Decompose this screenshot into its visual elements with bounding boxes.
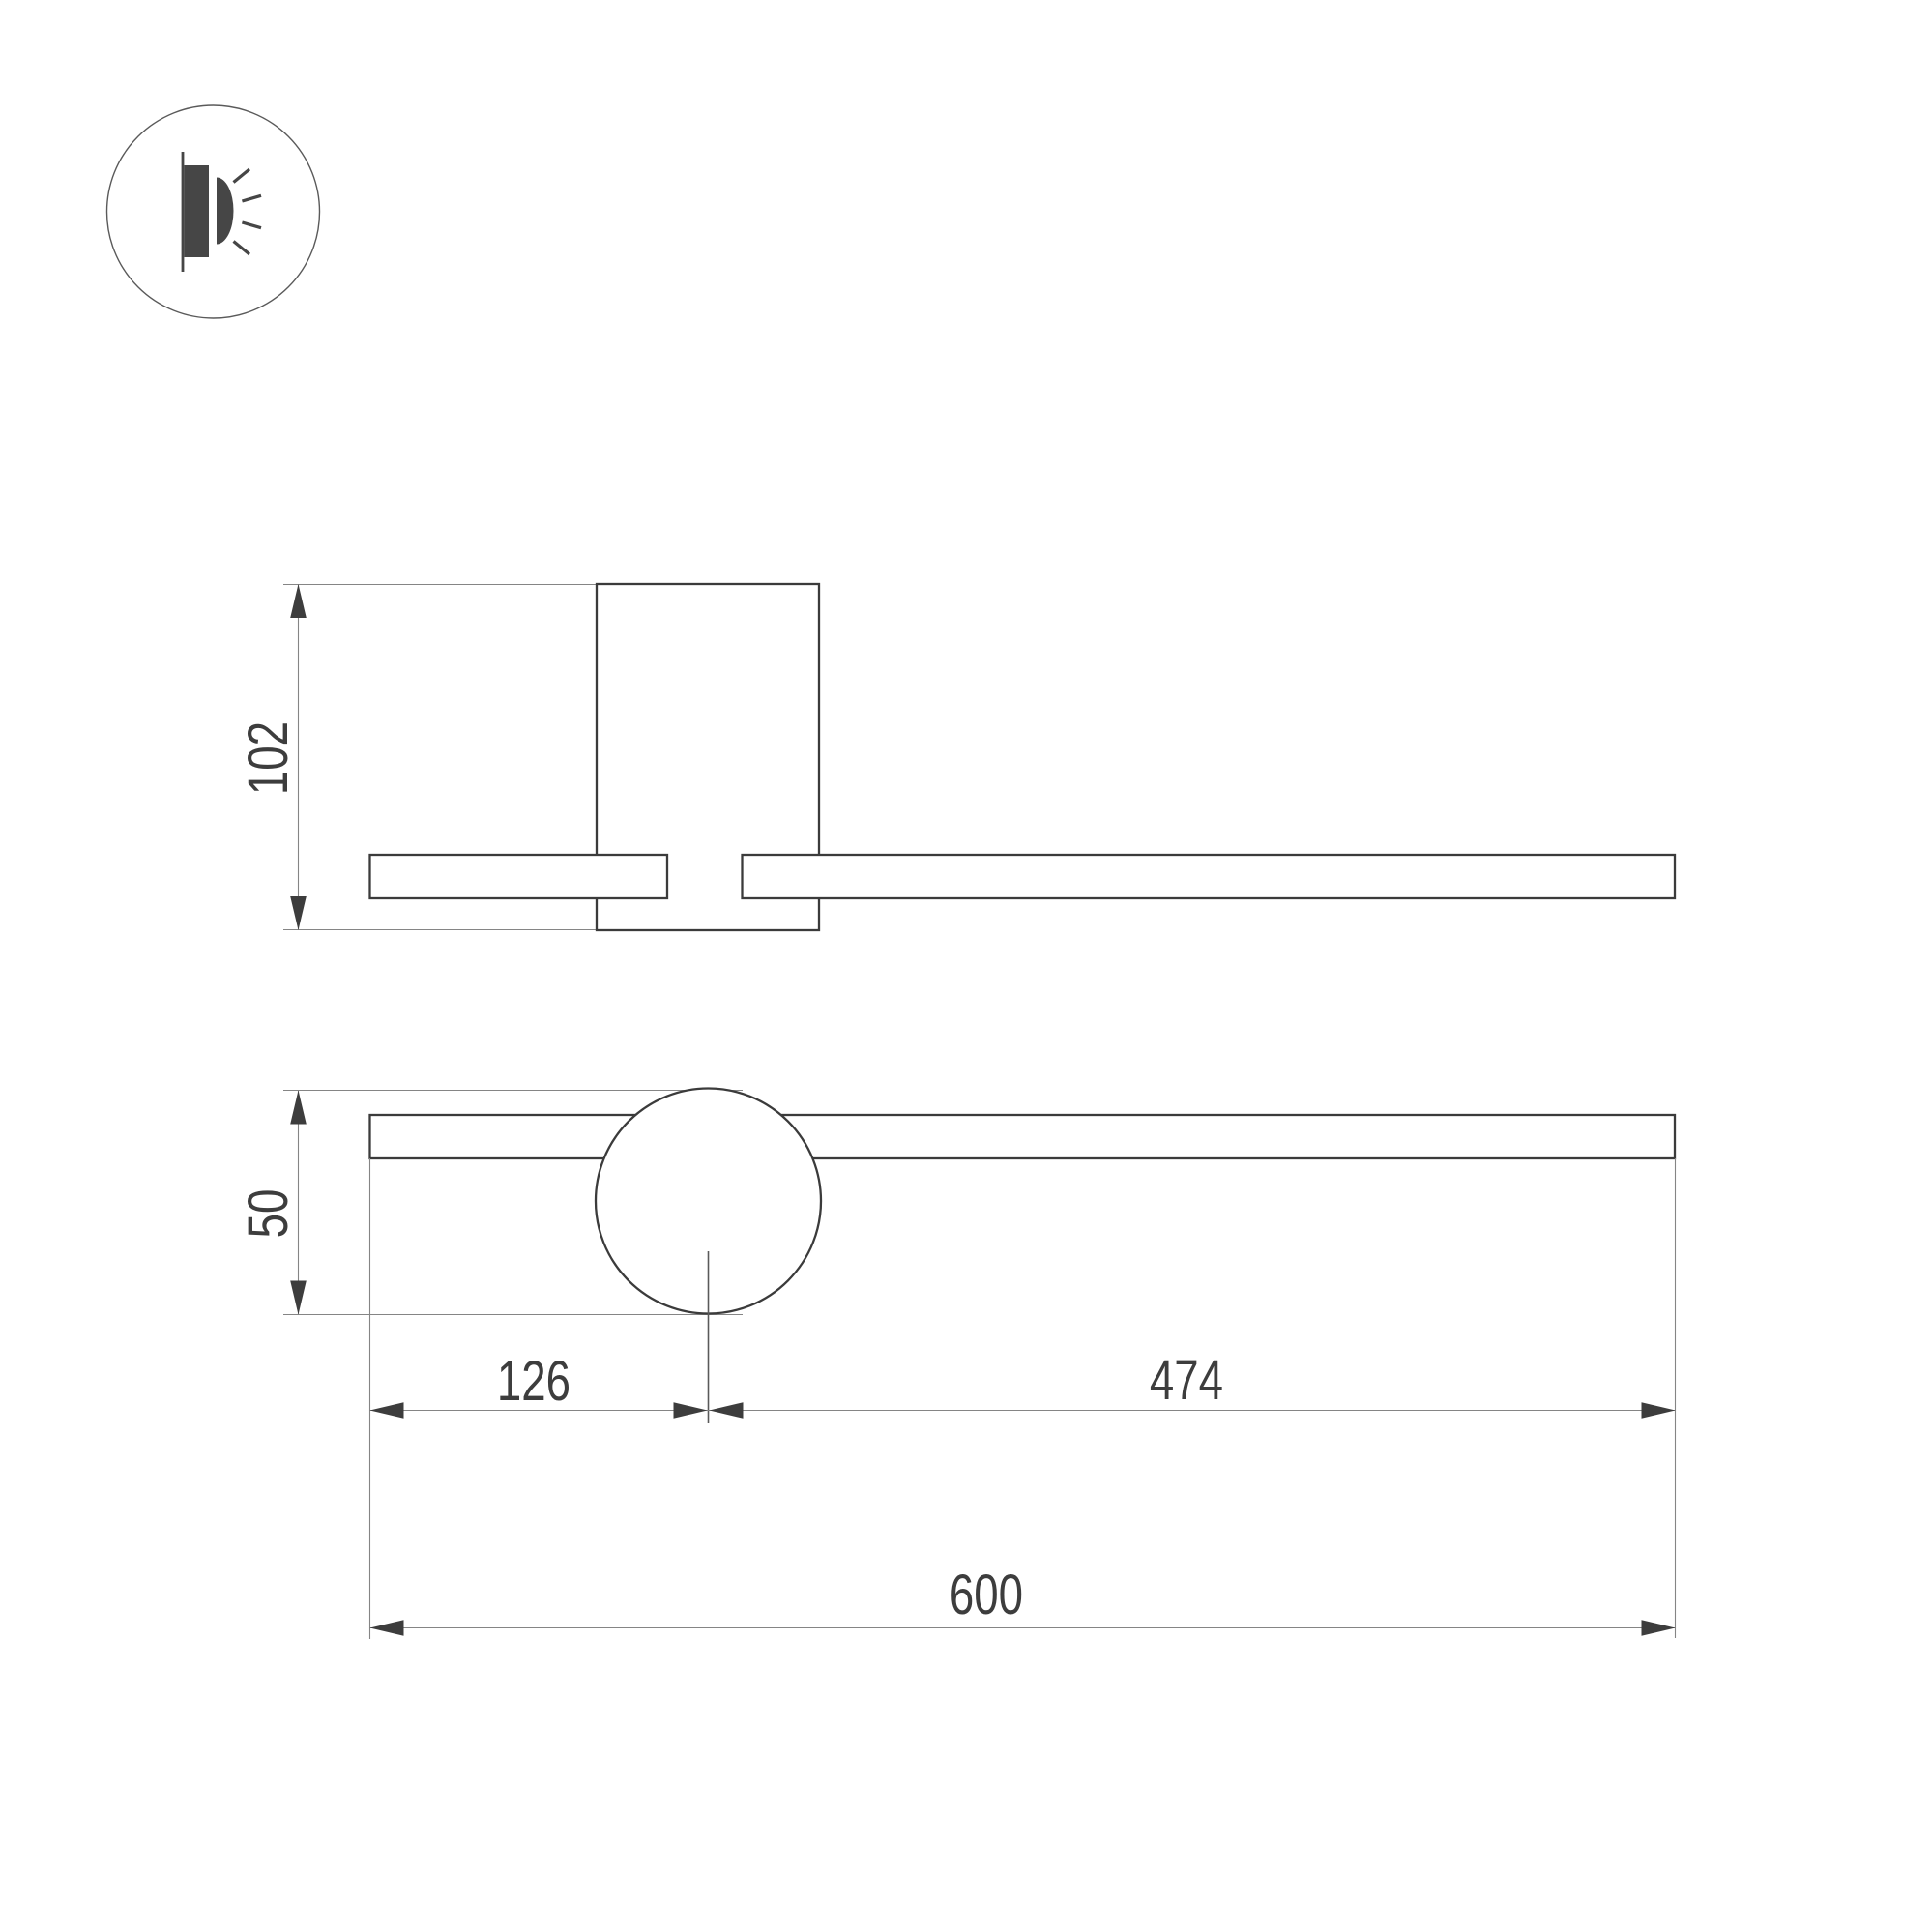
svg-text:50: 50 [238, 1189, 301, 1239]
svg-text:102: 102 [238, 721, 301, 795]
svg-text:474: 474 [1150, 1350, 1223, 1413]
svg-text:126: 126 [497, 1351, 571, 1414]
svg-text:600: 600 [950, 1565, 1023, 1627]
